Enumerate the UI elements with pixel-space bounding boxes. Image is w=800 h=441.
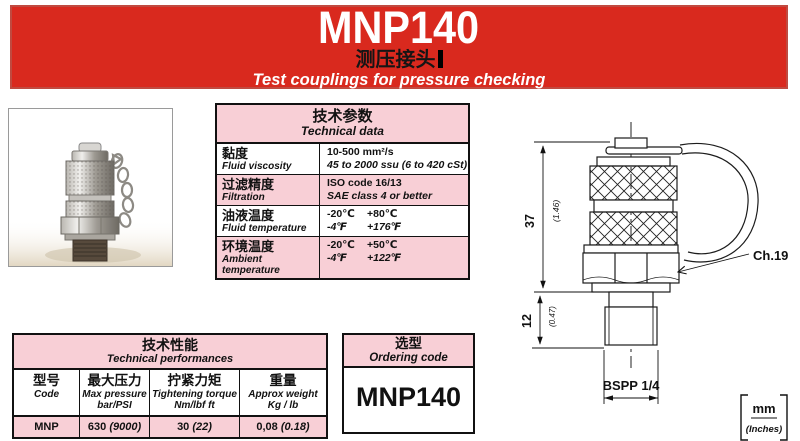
cell-pressure: 630 (9000) [80,417,150,437]
units-legend: mm (Inches) [741,395,787,440]
column-tightening-torque: 拧紧力矩 Tightening torque Nm/lbf ft [150,370,240,415]
value-line2: -4℉ [327,221,367,234]
value-line1: -20℃ [327,208,367,221]
thread-size-label: BSPP 1/4 [603,378,661,393]
technical-data-title-cn: 技术参数 [217,108,468,125]
coupling-dimension-drawing: 37 (1.46) 12 (0.47) Ch.19 BSPP 1/4 [520,100,800,441]
ordering-title-en: Ordering code [344,352,473,364]
ordering-code-value: MNP140 [344,382,473,413]
row-label-en: Fluid viscosity [222,161,319,172]
column-max-pressure: 最大压力 Max pressure bar/PSI [80,370,150,415]
coupling-body [583,138,679,345]
title-english: Test couplings for pressure checking [253,71,546,89]
row-label-en: Filtration [222,192,319,203]
row-label-en: Ambient temperature [222,254,319,276]
table-row-ambient-temperature: 环境温度 Ambient temperature -20℃+50℃ -4℉+12… [217,236,468,278]
row-label-cn: 黏度 [222,146,319,161]
dim-12-inches-label: (0.47) [548,306,557,327]
coupling-photo-illustration [9,109,172,266]
datasheet-page: MNP140 测压接头 Test couplings for pressure … [0,0,800,441]
thread-dim-arrow-left [604,395,613,400]
page-title: MNP140 [318,6,479,50]
row-label-cn: 油液温度 [222,208,319,223]
performances-data-row: MNP 630 (9000) 30 (22) 0,08 (0.18) [14,415,326,437]
ordering-title-cn: 选型 [344,336,473,352]
cell-code: MNP [14,417,80,437]
row-label-en: Fluid temperature [222,223,319,234]
cell-weight: 0,08 (0.18) [240,417,326,437]
technical-drawing: 37 (1.46) 12 (0.47) Ch.19 BSPP 1/4 [520,100,800,441]
units-inches-label: (Inches) [746,424,782,435]
hex-leader-line [678,254,749,272]
row-label-cn: 环境温度 [222,239,319,254]
technical-data-header: 技术参数 Technical data [217,105,468,144]
performances-header: 技术性能 Technical performances [14,335,326,370]
performances-column-headers: 型号 Code 最大压力 Max pressure bar/PSI 拧紧力矩 T… [14,370,326,415]
value-line2: SAE class 4 or better [327,190,432,203]
column-code: 型号 Code [14,370,80,415]
column-weight: 重量 Approx weight Kg / lb [240,370,326,415]
performances-title-cn: 技术性能 [14,337,326,353]
cell-torque: 30 (22) [150,417,240,437]
performances-title-en: Technical performances [14,353,326,365]
ordering-code-box: 选型 Ordering code MNP140 [342,333,475,434]
value-line1: ISO code 16/13 [327,177,402,190]
units-mm-label: mm [752,401,775,416]
header-banner: MNP140 测压接头 Test couplings for pressure … [10,5,788,89]
technical-data-table: 技术参数 Technical data 黏度 Fluid viscosity 1… [215,103,470,280]
ordering-code-header: 选型 Ordering code [344,335,473,368]
dim-37-inches-label: (1.46) [551,200,561,222]
value-line2: 45 to 2000 ssu (6 to 420 cSt) [327,159,467,172]
value-line2: -4℉ [327,252,367,265]
value-line1: 10-500 mm²/s [327,146,394,159]
dim-37-label: 37 [523,214,537,228]
table-row-filtration: 过滤精度 Filtration ISO code 16/13 SAE class… [217,174,468,205]
title-chinese: 测压接头 [356,50,443,71]
dim-12-label: 12 [520,314,534,328]
table-row-fluid-temperature: 油液温度 Fluid temperature -20℃+80℃ -4℉+176℉ [217,205,468,236]
table-row-viscosity: 黏度 Fluid viscosity 10-500 mm²/s 45 to 20… [217,144,468,174]
value-line1: -20℃ [327,239,367,252]
technical-performances-table: 技术性能 Technical performances 型号 Code 最大压力… [12,333,328,439]
hex-size-label: Ch.19 [753,248,788,263]
product-photo [8,108,173,267]
row-label-cn: 过滤精度 [222,177,319,192]
dimension-12 [532,296,604,348]
technical-data-title-en: Technical data [217,125,468,138]
thread-dim-arrow-right [649,395,658,400]
